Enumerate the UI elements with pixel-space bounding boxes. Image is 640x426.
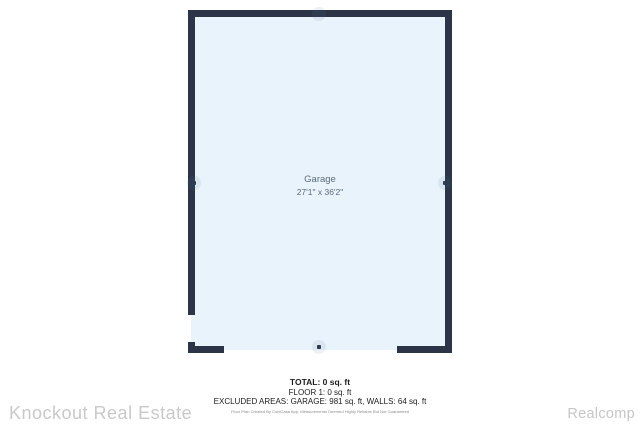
scan-point-marker-top (317, 12, 321, 16)
floor1-area-line: FLOOR 1: 0 sq. ft (0, 388, 640, 398)
scan-point-marker-bottom (317, 345, 321, 349)
room-label-group: Garage 27'1" x 36'2" (188, 174, 452, 198)
floor-plan-page: Garage 27'1" x 36'2" TOTAL: 0 sq. ft FLO… (0, 0, 640, 426)
wall-left (188, 10, 195, 315)
wall-bottom-left-segment (188, 346, 224, 353)
room-name: Garage (188, 174, 452, 186)
watermark-realcomp: Realcomp (567, 406, 635, 422)
watermark-knockout-real-estate: Knockout Real Estate (9, 403, 192, 424)
garage-door-opening (224, 346, 397, 353)
side-door-opening (188, 315, 195, 342)
wall-bottom-right-segment (397, 346, 452, 353)
room-dimensions: 27'1" x 36'2" (188, 186, 452, 198)
total-area-line: TOTAL: 0 sq. ft (0, 378, 640, 388)
